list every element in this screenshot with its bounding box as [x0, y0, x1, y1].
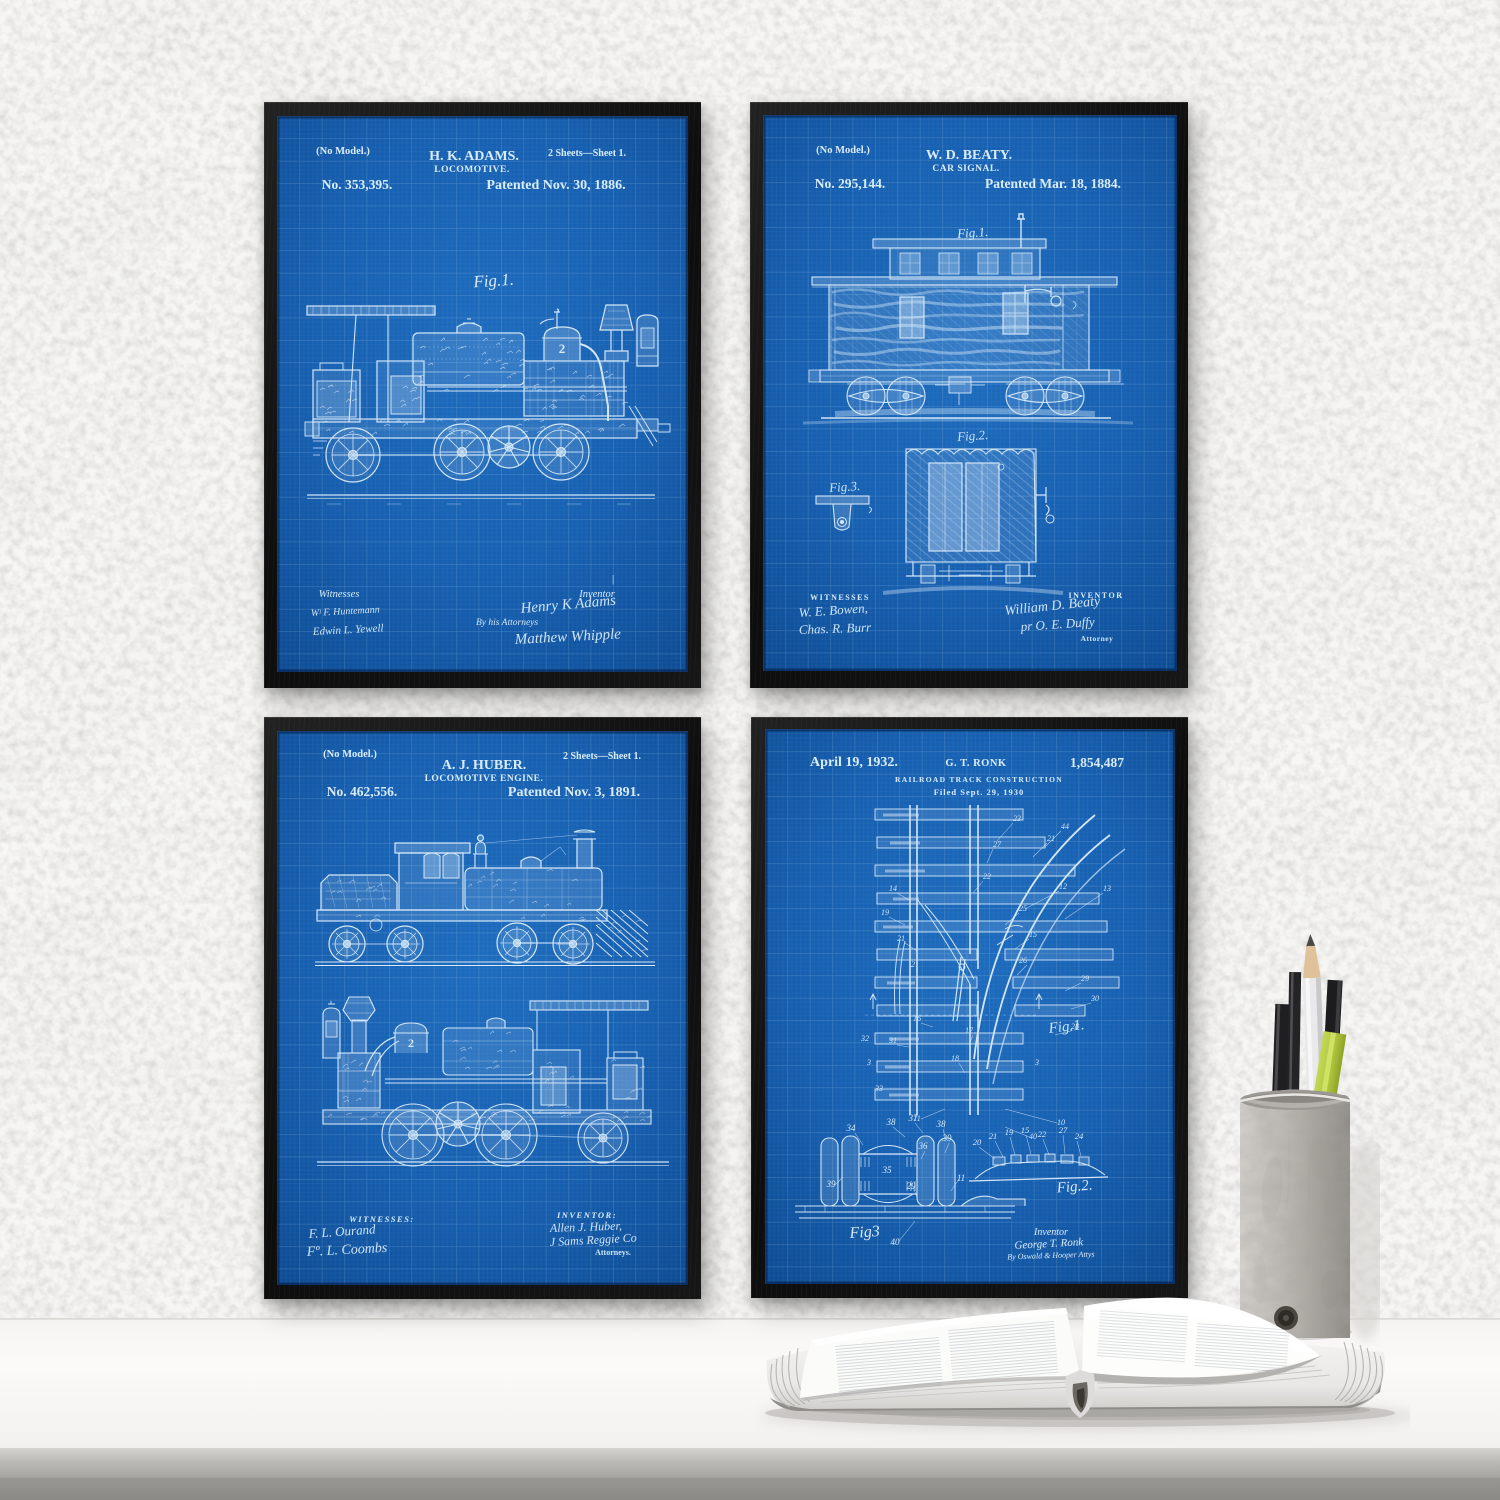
svg-text:38: 38 — [886, 1117, 897, 1127]
svg-text:39: 39 — [942, 1133, 953, 1143]
svg-text:12: 12 — [1059, 882, 1067, 891]
svg-text:G. T. RONK: G. T. RONK — [945, 758, 1007, 769]
svg-text:33: 33 — [874, 1084, 883, 1093]
svg-text:38: 38 — [936, 1119, 947, 1129]
svg-text:(No Model.): (No Model.) — [316, 146, 370, 157]
svg-text:No. 353,395.: No. 353,395. — [322, 177, 393, 192]
svg-text:April 19, 1932.: April 19, 1932. — [810, 755, 898, 770]
svg-text:|: | — [612, 573, 614, 585]
svg-text:RAILROAD TRACK CONSTRUCTION: RAILROAD TRACK CONSTRUCTION — [895, 775, 1063, 784]
svg-text:20: 20 — [973, 1137, 982, 1147]
svg-text:29: 29 — [1081, 974, 1089, 983]
svg-text:35: 35 — [882, 1165, 893, 1175]
svg-text:2 Sheets—Sheet 1.: 2 Sheets—Sheet 1. — [563, 751, 642, 762]
svg-text:22: 22 — [1038, 1129, 1047, 1139]
svg-text:No. 462,556.: No. 462,556. — [327, 784, 398, 799]
svg-text:2 Sheets—Sheet 1.: 2 Sheets—Sheet 1. — [548, 148, 627, 159]
svg-text:15: 15 — [1029, 930, 1037, 939]
svg-text:27: 27 — [1059, 1125, 1068, 1135]
svg-text:1,854,487: 1,854,487 — [1070, 755, 1124, 770]
svg-text:24: 24 — [1075, 1131, 1084, 1141]
svg-text:16: 16 — [913, 1014, 921, 1023]
svg-text:39: 39 — [826, 1179, 837, 1189]
svg-text:11: 11 — [957, 1173, 965, 1183]
svg-text:29: 29 — [907, 1181, 917, 1191]
svg-text:22: 22 — [983, 872, 991, 881]
svg-text:27: 27 — [993, 840, 1002, 849]
svg-text:31: 31 — [888, 1036, 897, 1045]
svg-text:30: 30 — [1090, 994, 1099, 1003]
svg-text:LOCOMOTIVE ENGINE.: LOCOMOTIVE ENGINE. — [425, 774, 544, 784]
svg-text:32: 32 — [860, 1034, 869, 1043]
svg-text:A. J. HUBER.: A. J. HUBER. — [442, 758, 526, 773]
svg-text:37: 37 — [908, 1113, 919, 1123]
svg-text:Attorney: Attorney — [1081, 634, 1114, 643]
svg-text:CAR SIGNAL.: CAR SIGNAL. — [932, 164, 999, 174]
svg-text:No. 295,144.: No. 295,144. — [815, 176, 886, 191]
svg-text:2: 2 — [559, 341, 566, 356]
svg-text:By his Attorneys: By his Attorneys — [476, 618, 538, 628]
svg-text:Fig.3.: Fig.3. — [828, 478, 861, 495]
svg-text:44: 44 — [1061, 822, 1069, 831]
svg-text:Patented Nov. 30, 1886.: Patented Nov. 30, 1886. — [486, 178, 625, 193]
svg-text:15: 15 — [1021, 1125, 1030, 1135]
svg-text:19: 19 — [1005, 1127, 1014, 1137]
svg-text:26: 26 — [1019, 956, 1027, 965]
svg-text:2: 2 — [408, 1036, 414, 1050]
svg-text:Witnesses: Witnesses — [319, 589, 360, 600]
svg-text:18: 18 — [951, 1054, 959, 1063]
svg-text:23: 23 — [1013, 814, 1021, 823]
svg-text:LOCOMOTIVE.: LOCOMOTIVE. — [434, 165, 509, 175]
svg-text:2: 2 — [911, 960, 915, 969]
svg-text:W. D. BEATY.: W. D. BEATY. — [926, 148, 1012, 163]
svg-text:Fig.1.: Fig.1. — [472, 270, 515, 292]
svg-text:19: 19 — [881, 908, 889, 917]
svg-text:21: 21 — [897, 934, 905, 943]
svg-text:Chas. R. Burr: Chas. R. Burr — [799, 619, 873, 637]
svg-text:3: 3 — [1034, 1058, 1039, 1067]
svg-text:Fig3: Fig3 — [848, 1223, 880, 1242]
svg-text:Attorneys.: Attorneys. — [595, 1248, 631, 1257]
svg-text:34: 34 — [846, 1123, 857, 1133]
svg-text:Patented Nov. 3, 1891.: Patented Nov. 3, 1891. — [508, 785, 640, 800]
svg-text:3: 3 — [866, 1058, 871, 1067]
svg-text:40: 40 — [1029, 1132, 1037, 1141]
svg-text:(No Model.): (No Model.) — [323, 749, 377, 760]
svg-text:Filed Sept. 29, 1930: Filed Sept. 29, 1930 — [934, 787, 1025, 797]
svg-text:H. K. ADAMS.: H. K. ADAMS. — [429, 149, 519, 164]
svg-text:40: 40 — [891, 1237, 901, 1247]
svg-text:17: 17 — [965, 1026, 974, 1035]
svg-text:13: 13 — [1103, 884, 1111, 893]
svg-text:Patented Mar. 18, 1884.: Patented Mar. 18, 1884. — [985, 176, 1121, 191]
svg-text:14: 14 — [889, 884, 897, 893]
svg-text:(No Model.): (No Model.) — [816, 145, 870, 156]
svg-text:21: 21 — [989, 1131, 998, 1141]
svg-text:36: 36 — [918, 1141, 929, 1151]
svg-text:Fig.2.: Fig.2. — [1055, 1177, 1093, 1196]
svg-text:Fig.2.: Fig.2. — [956, 427, 989, 444]
